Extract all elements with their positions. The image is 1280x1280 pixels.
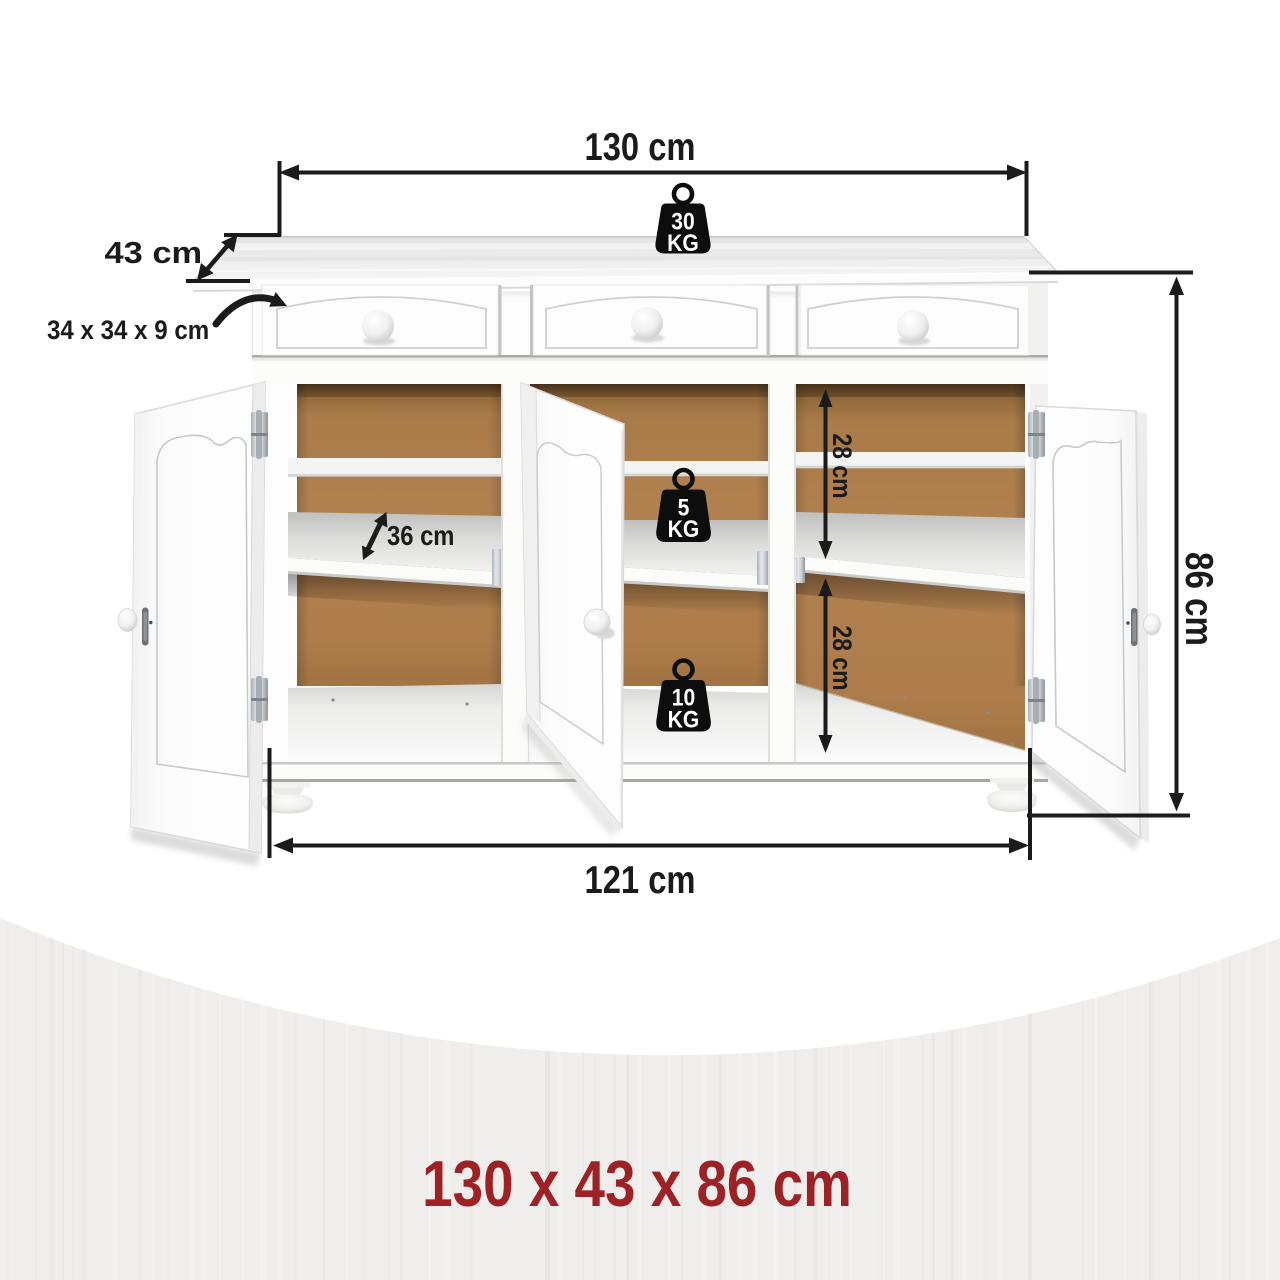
svg-text:130 cm: 130 cm [585,126,696,169]
svg-text:121 cm: 121 cm [585,859,696,902]
svg-text:43 cm: 43 cm [105,236,203,270]
svg-text:130 x 43 x 86 cm: 130 x 43 x 86 cm [422,1148,852,1220]
svg-text:KG: KG [668,706,700,733]
svg-text:28 cm: 28 cm [827,625,857,690]
svg-text:KG: KG [668,516,700,543]
svg-text:86 cm: 86 cm [1177,552,1221,646]
svg-text:28 cm: 28 cm [827,433,857,498]
svg-text:36 cm: 36 cm [387,519,454,551]
svg-text:KG: KG [667,230,699,257]
svg-text:34 x 34 x 9 cm: 34 x 34 x 9 cm [47,316,209,345]
